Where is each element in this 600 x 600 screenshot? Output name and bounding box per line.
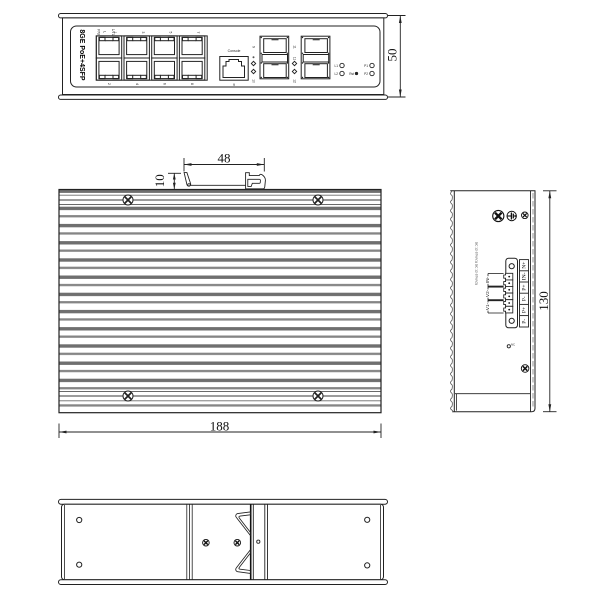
svg-text:6: 6 <box>163 83 167 85</box>
svg-text:9: 9 <box>252 46 256 48</box>
svg-text:IN-: IN- <box>521 272 527 280</box>
svg-text:P-: P- <box>521 319 527 324</box>
svg-text:NC: NC <box>511 343 515 347</box>
svg-text:Console: Console <box>228 49 241 53</box>
svg-text:7: 7 <box>196 32 200 34</box>
svg-text:12: 12 <box>293 79 297 83</box>
svg-text:IN-: IN- <box>485 276 490 283</box>
svg-text:10: 10 <box>252 79 256 83</box>
svg-text:V1-: V1- <box>485 302 490 310</box>
svg-text:48: 48 <box>218 150 231 165</box>
svg-text:N+: N+ <box>521 262 527 269</box>
svg-text:P+: P+ <box>521 307 527 313</box>
svg-text:P+: P+ <box>521 284 527 290</box>
svg-text:P1: P1 <box>364 64 368 68</box>
svg-text:11: 11 <box>293 57 297 61</box>
svg-text:3: 3 <box>141 32 145 34</box>
svg-text:V2-: V2- <box>485 289 490 297</box>
svg-text:P2: P2 <box>364 72 368 76</box>
svg-text:P/U: P/U <box>97 29 101 35</box>
svg-text:9: 9 <box>233 83 235 87</box>
svg-text:188: 188 <box>210 418 230 433</box>
svg-text:L1: L1 <box>334 64 338 68</box>
svg-text:Rst: Rst <box>349 72 354 76</box>
svg-text:P-: P- <box>521 296 527 301</box>
svg-text:10: 10 <box>152 174 167 187</box>
svg-text:1/T1: 1/T1 <box>111 29 115 36</box>
svg-text:8: 8 <box>190 83 194 85</box>
svg-text:L2: L2 <box>334 72 338 76</box>
svg-text:11: 11 <box>293 45 297 49</box>
svg-text:4: 4 <box>135 83 139 85</box>
svg-text:130: 130 <box>536 291 551 311</box>
svg-text:DC 12-57V(V1) DC 12-57V(V2): DC 12-57V(V1) DC 12-57V(V2) <box>475 242 479 285</box>
svg-text:5: 5 <box>169 32 173 34</box>
svg-text:50: 50 <box>385 49 400 62</box>
svg-text:L: L <box>103 31 107 33</box>
svg-text:2: 2 <box>107 83 111 85</box>
svg-text:8GE PoE+4SFP: 8GE PoE+4SFP <box>78 29 85 80</box>
